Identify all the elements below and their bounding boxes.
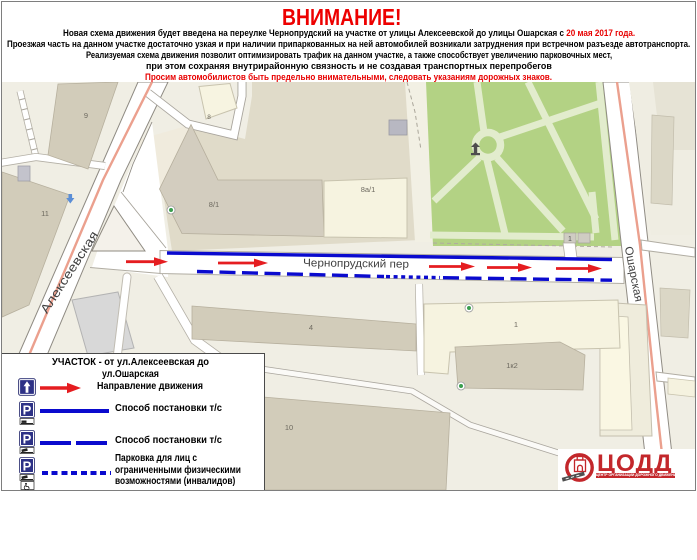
svg-text:1: 1 [568, 236, 572, 243]
svg-text:8/1: 8/1 [209, 200, 219, 209]
svg-text:4: 4 [309, 323, 313, 332]
svg-text:8: 8 [207, 114, 211, 121]
svg-text:1к2: 1к2 [506, 361, 518, 370]
svg-text:8а/1: 8а/1 [361, 185, 376, 194]
svg-text:P: P [23, 432, 32, 447]
svg-text:1: 1 [514, 320, 518, 329]
svg-text:Чернопрудский пер: Чернопрудский пер [303, 257, 409, 270]
svg-text:P: P [23, 403, 32, 418]
svg-text:P: P [23, 459, 32, 474]
svg-text:10: 10 [285, 423, 293, 432]
svg-text:9: 9 [84, 111, 88, 120]
svg-text:11: 11 [41, 209, 49, 218]
